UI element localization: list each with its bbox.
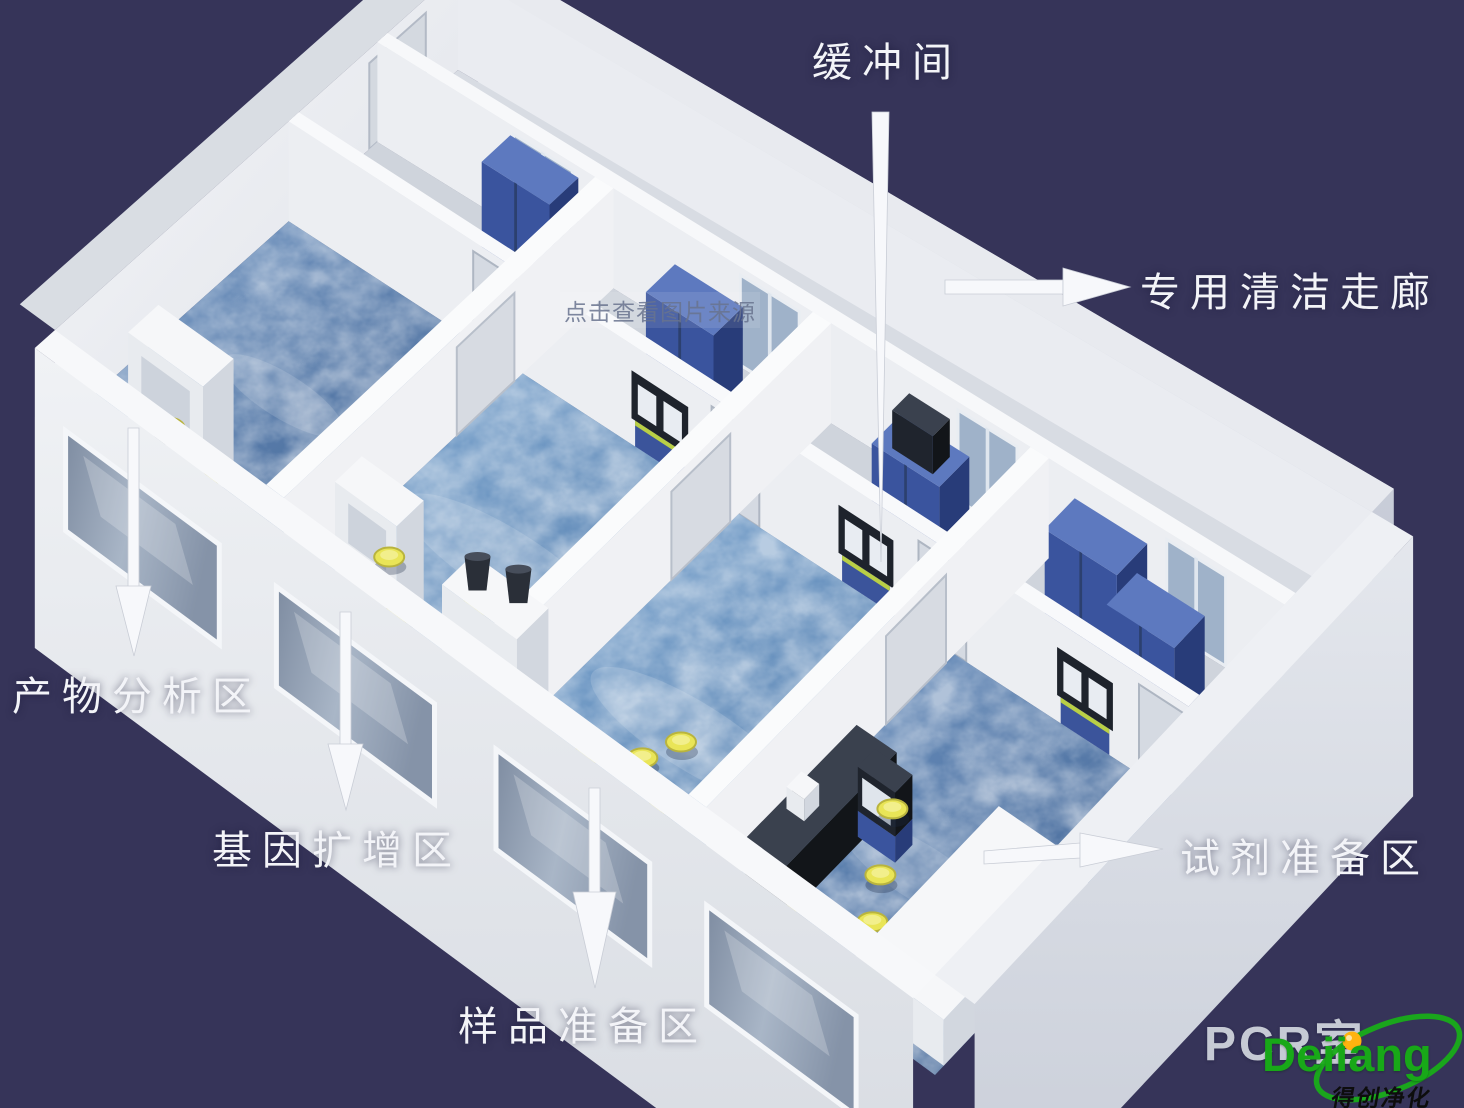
label-reagent-preparation-area: 试剂准备区 xyxy=(1180,826,1430,884)
brand-logo: Deiiang 得创净化 xyxy=(1240,995,1464,1108)
watermark-link[interactable]: 点击查看图片来源 xyxy=(560,292,760,328)
label-clean-corridor: 专用清洁走廊 xyxy=(1140,260,1440,318)
label-gene-amplification-area: 基因扩增区 xyxy=(212,818,462,876)
building xyxy=(20,0,1413,1108)
label-sample-preparation-area: 样品准备区 xyxy=(458,994,708,1052)
screenshot-stage: 点击查看图片来源 缓冲间 专用清洁走廊 产物分析区 基因扩增区 样品准备区 试剂… xyxy=(0,0,1464,1108)
label-buffer-room: 缓冲间 xyxy=(812,30,962,88)
lab-3d-illustration xyxy=(0,0,1464,1108)
brand-tagline: 得创净化 xyxy=(1329,1079,1435,1108)
brand-name: Deiiang xyxy=(1262,1027,1432,1082)
label-product-analysis-area: 产物分析区 xyxy=(12,664,262,722)
